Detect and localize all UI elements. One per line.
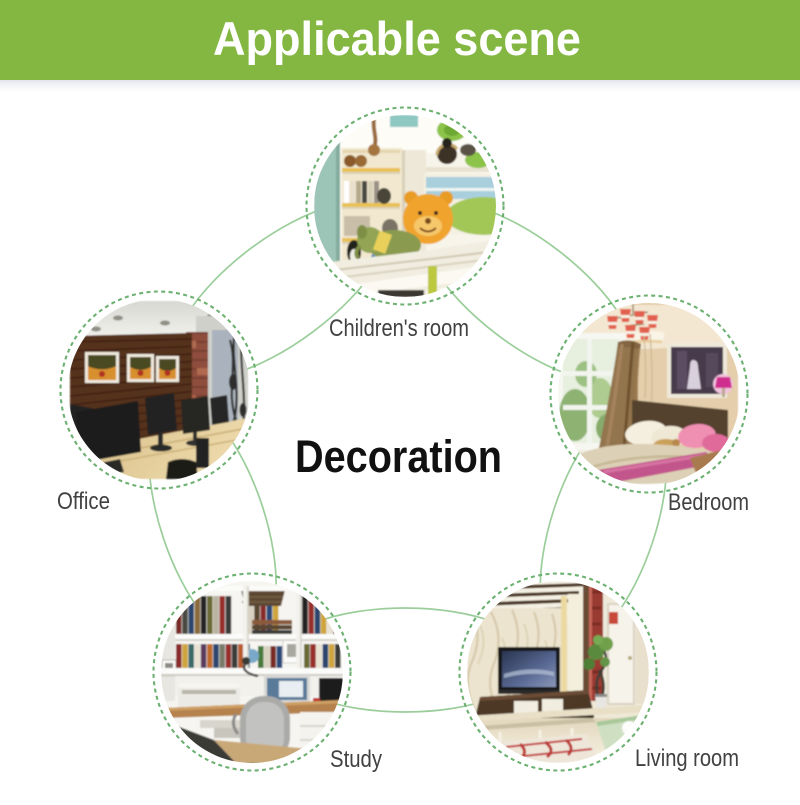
svg-text:Study: Study [330,746,382,773]
svg-text:Decoration: Decoration [295,431,502,482]
svg-text:Children's room: Children's room [329,315,469,342]
svg-text:Office: Office [57,488,110,515]
svg-text:Living room: Living room [635,745,739,772]
svg-text:Applicable scene: Applicable scene [213,12,581,65]
svg-text:Bedroom: Bedroom [668,489,749,516]
